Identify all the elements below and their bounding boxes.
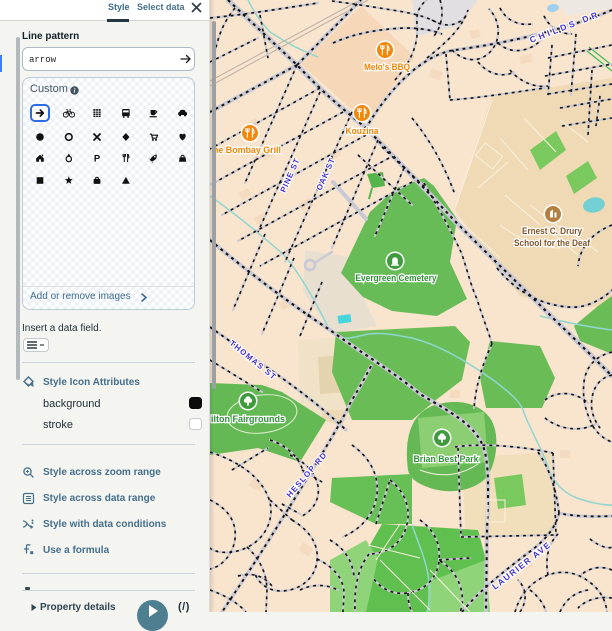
svg-text:Kouzina: Kouzina <box>346 126 380 136</box>
svg-text:School for the Deaf: School for the Deaf <box>514 238 591 248</box>
svg-text:Brian Best Park: Brian Best Park <box>414 454 480 465</box>
svg-text:Ernest C. Drury: Ernest C. Drury <box>522 226 582 236</box>
svg-text:ilton Fairgrounds: ilton Fairgrounds <box>211 414 285 425</box>
svg-text:Melo's BBQ: Melo's BBQ <box>364 62 410 72</box>
svg-text:he Bombay Grill: he Bombay Grill <box>213 145 281 155</box>
svg-text:P: P <box>94 153 101 164</box>
svg-text:Evergreen Cemetery: Evergreen Cemetery <box>356 273 438 284</box>
